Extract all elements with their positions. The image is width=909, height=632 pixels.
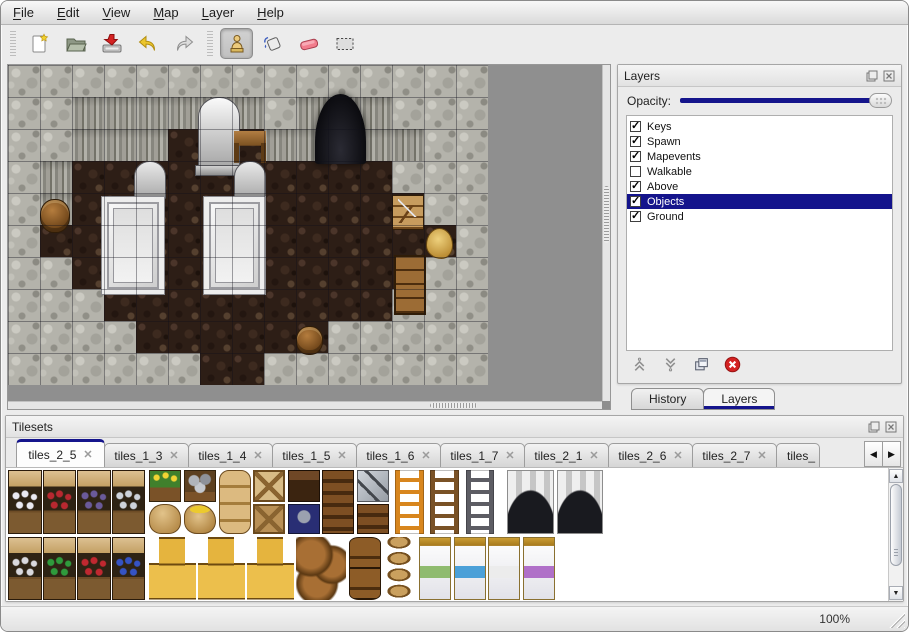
tileset-tile-cave-arch[interactable] <box>507 470 553 534</box>
map-tile[interactable] <box>456 97 488 129</box>
map-tile[interactable] <box>104 97 136 129</box>
map-tile[interactable] <box>456 257 488 289</box>
opacity-slider-handle[interactable] <box>869 93 892 108</box>
map-tile[interactable] <box>392 321 424 353</box>
map-tile[interactable] <box>360 257 392 289</box>
select-button[interactable] <box>328 28 361 59</box>
status-bar: 100% <box>1 606 908 631</box>
open-icon <box>64 32 88 56</box>
layer-checkbox[interactable]: ✓ <box>630 151 641 162</box>
layer-row-mapevents[interactable]: ✓Mapevents <box>627 149 892 164</box>
map-tile[interactable] <box>8 225 40 257</box>
tileset-tab-tiles_2_5[interactable]: tiles_2_5✕ <box>16 439 105 467</box>
menu-edit[interactable]: Edit <box>57 5 79 20</box>
tileset-tab-tiles_1_5[interactable]: tiles_1_5✕ <box>272 443 357 467</box>
layer-row-keys[interactable]: ✓Keys <box>627 119 892 134</box>
map-tile[interactable] <box>360 65 392 97</box>
map-tile[interactable] <box>392 65 424 97</box>
map-tile[interactable] <box>296 257 328 289</box>
menu-view[interactable]: View <box>102 5 130 20</box>
layers-panel-titlebar: Layers <box>618 65 901 87</box>
layer-name: Spawn <box>647 136 681 148</box>
layer-name: Walkable <box>647 166 692 178</box>
tileset-tile-shelf[interactable] <box>77 470 111 534</box>
tilesets-panel-titlebar: Tilesets <box>6 416 903 438</box>
tilesets-panel-title: Tilesets <box>12 420 863 434</box>
map-tile[interactable] <box>392 161 424 193</box>
tileset-tab-label: tiles_1_7 <box>450 449 498 463</box>
close-icon[interactable] <box>882 69 895 82</box>
map-tile[interactable] <box>424 65 456 97</box>
stamp-button[interactable] <box>220 28 253 59</box>
map-tile[interactable] <box>104 321 136 353</box>
close-icon[interactable] <box>884 420 897 433</box>
tileset-tile-cave-arch[interactable] <box>557 470 603 534</box>
redo-button[interactable] <box>167 28 200 59</box>
tileset-tile-shelf[interactable] <box>43 470 77 534</box>
tileset-tile-bed[interactable] <box>419 537 451 599</box>
map-tile[interactable] <box>264 65 296 97</box>
map-tile[interactable] <box>40 161 72 193</box>
map-object-barrel[interactable] <box>40 199 70 233</box>
tileset-tile-sack-open[interactable] <box>184 504 216 534</box>
map-tile[interactable] <box>168 225 200 257</box>
tab-close-icon[interactable]: ✕ <box>757 449 766 462</box>
map-tile[interactable] <box>296 353 328 385</box>
map-tile[interactable] <box>360 321 392 353</box>
scroll-down-icon[interactable]: ▼ <box>889 586 903 600</box>
tileset-tile-ladder[interactable] <box>430 470 459 534</box>
map-vertical-scrollbar-thumb[interactable] <box>604 186 609 243</box>
map-tile[interactable] <box>328 193 360 225</box>
map-tile[interactable] <box>328 65 360 97</box>
tileset-scrollbar-thumb[interactable] <box>890 484 902 566</box>
map-tile[interactable] <box>360 225 392 257</box>
tileset-tile-crate-pile[interactable] <box>198 537 244 599</box>
map-tile[interactable] <box>264 129 296 161</box>
map-tile[interactable] <box>40 65 72 97</box>
tileset-tab-label: tiles_1_5 <box>282 449 330 463</box>
tileset-tab-label: tiles_1_6 <box>366 449 414 463</box>
layer-checkbox[interactable]: ✓ <box>630 211 641 222</box>
tab-close-icon[interactable]: ✕ <box>83 448 92 461</box>
map-tile[interactable] <box>72 321 104 353</box>
map-object-skull[interactable] <box>426 228 453 258</box>
map-tile[interactable] <box>328 321 360 353</box>
map-tile[interactable] <box>232 353 264 385</box>
map-tile[interactable] <box>264 353 296 385</box>
map-object-gravestone[interactable] <box>234 161 266 199</box>
map-tile[interactable] <box>8 97 40 129</box>
map-tile[interactable] <box>424 257 456 289</box>
layer-checkbox[interactable]: ✓ <box>630 121 641 132</box>
tileset-tile-chest-dark[interactable] <box>288 470 320 502</box>
tileset-tile-crate-pile[interactable] <box>149 537 195 599</box>
map-tile[interactable] <box>392 129 424 161</box>
map-tile[interactable] <box>40 257 72 289</box>
move-layer-down-button[interactable] <box>661 358 679 376</box>
tileset-tab-tiles_1_4[interactable]: tiles_1_4✕ <box>188 443 273 467</box>
map-tile[interactable] <box>456 289 488 321</box>
delete-layer-button[interactable] <box>723 358 741 376</box>
opacity-slider-track <box>680 98 890 103</box>
map-tile[interactable] <box>104 161 136 193</box>
map-tile[interactable] <box>40 129 72 161</box>
layers-panel-title: Layers <box>624 69 861 83</box>
tileset-tile-barrel-upright[interactable] <box>349 537 381 599</box>
map-tile[interactable] <box>168 353 200 385</box>
map-vertical-scrollbar[interactable] <box>602 65 610 401</box>
tileset-tile-box-blue[interactable] <box>288 504 320 534</box>
tab-history[interactable]: History <box>631 388 704 410</box>
map-tile[interactable] <box>456 225 488 257</box>
map-tile[interactable] <box>136 353 168 385</box>
map-tile[interactable] <box>232 65 264 97</box>
map-tile[interactable] <box>360 289 392 321</box>
map-object-toolshelf[interactable] <box>392 195 424 230</box>
map-tile[interactable] <box>168 97 200 129</box>
new-map-button[interactable] <box>23 28 56 59</box>
map-tile[interactable] <box>424 321 456 353</box>
tileset-tile-box-z4[interactable] <box>357 470 389 502</box>
map-tile[interactable] <box>200 353 232 385</box>
layer-row-spawn[interactable]: ✓Spawn <box>627 134 892 149</box>
tab-close-icon[interactable]: ✕ <box>337 449 346 462</box>
map-tile[interactable] <box>136 129 168 161</box>
tab-close-icon[interactable]: ✕ <box>169 449 178 462</box>
layer-row-ground[interactable]: ✓Ground <box>627 209 892 224</box>
map-tile[interactable] <box>232 321 264 353</box>
right-dock: Layers Opacity: ✓Keys✓Spawn✓Mapevents <box>617 64 902 410</box>
map-tile[interactable] <box>424 161 456 193</box>
map-tile[interactable] <box>136 97 168 129</box>
map-tile[interactable] <box>72 225 104 257</box>
eraser-icon <box>297 32 321 56</box>
map-tile[interactable] <box>136 321 168 353</box>
tileset-tab-label: tiles_2_5 <box>28 448 76 462</box>
map-tile[interactable] <box>264 97 296 129</box>
tab-close-icon[interactable]: ✕ <box>253 449 262 462</box>
tab-close-icon[interactable]: ✕ <box>673 449 682 462</box>
map-tile[interactable] <box>72 97 104 129</box>
tileset-tile-ladder[interactable] <box>466 470 495 534</box>
tileset-tile-ladder[interactable] <box>395 470 424 534</box>
save-button[interactable] <box>95 28 128 59</box>
map-tile[interactable] <box>264 321 296 353</box>
tileset-tab-label: tiles_2_7 <box>702 449 750 463</box>
map-tile[interactable] <box>392 225 424 257</box>
layer-name: Keys <box>647 121 671 133</box>
map-tile[interactable] <box>328 257 360 289</box>
map-tile[interactable] <box>136 65 168 97</box>
tileset-tile-barrel-pile[interactable] <box>296 537 346 599</box>
tileset-tab-tiles[interactable]: tiles_ <box>776 443 820 467</box>
map-tile[interactable] <box>168 289 200 321</box>
tileset-tile-shelf[interactable] <box>8 470 42 534</box>
tileset-tile-shelf[interactable] <box>77 537 111 599</box>
map-tile[interactable] <box>424 129 456 161</box>
tileset-tab-tiles_2_1[interactable]: tiles_2_1✕ <box>524 443 609 467</box>
opacity-row: Opacity: <box>618 87 901 114</box>
map-tile[interactable] <box>40 289 72 321</box>
map-tile[interactable] <box>8 289 40 321</box>
layer-row-objects[interactable]: ✓Objects <box>627 194 892 209</box>
layer-checkbox[interactable]: ✓ <box>630 196 641 207</box>
tileset-tab-label: tiles_2_1 <box>534 449 582 463</box>
map-tile[interactable] <box>8 353 40 385</box>
tab-layers[interactable]: Layers <box>703 388 775 410</box>
save-icon <box>100 32 124 56</box>
tileset-tab-tiles_1_6[interactable]: tiles_1_6✕ <box>356 443 441 467</box>
map-object-altar[interactable] <box>101 196 165 295</box>
map-tile[interactable] <box>72 193 104 225</box>
map-tile[interactable] <box>72 65 104 97</box>
map-tile[interactable] <box>104 353 136 385</box>
map-tile[interactable] <box>360 353 392 385</box>
tileset-tab-label: tiles_1_4 <box>198 449 246 463</box>
layer-checkbox[interactable]: ✓ <box>630 181 641 192</box>
layers-panel: Layers Opacity: ✓Keys✓Spawn✓Mapevents <box>617 64 902 384</box>
undo-icon <box>136 32 160 56</box>
map-tile[interactable] <box>8 129 40 161</box>
resize-grip[interactable] <box>888 611 905 628</box>
tileset-tab-bar: tiles_2_5✕tiles_1_3✕tiles_1_4✕tiles_1_5✕… <box>6 438 903 467</box>
map-tile[interactable] <box>8 193 40 225</box>
tileset-tab-label: tiles_2_6 <box>618 449 666 463</box>
tileset-tab-tiles_1_3[interactable]: tiles_1_3✕ <box>104 443 189 467</box>
map-tile[interactable] <box>264 225 296 257</box>
map-tile[interactable] <box>168 65 200 97</box>
zoom-level: 100% <box>819 612 850 626</box>
layer-name: Objects <box>647 196 684 208</box>
tab-scroll-buttons: ◀▶ <box>865 441 901 467</box>
new-map-icon <box>28 32 52 56</box>
map-object-altar[interactable] <box>203 196 265 295</box>
menu-layer[interactable]: Layer <box>202 5 235 20</box>
map-object-table[interactable] <box>234 131 266 163</box>
map-tile[interactable] <box>424 97 456 129</box>
tileset-tile-bed[interactable] <box>488 537 520 599</box>
map-tile[interactable] <box>168 257 200 289</box>
tileset-tile-planter[interactable] <box>149 470 181 502</box>
map-tile[interactable] <box>72 129 104 161</box>
toolbar <box>1 25 908 62</box>
move-layer-down-icon <box>662 356 679 378</box>
opacity-label: Opacity: <box>627 94 671 108</box>
menu-file[interactable]: File <box>13 5 34 20</box>
tileset-vertical-scrollbar[interactable]: ▲ ▼ <box>888 468 903 601</box>
map-tile[interactable] <box>72 353 104 385</box>
map-tile[interactable] <box>264 161 296 193</box>
map-tile[interactable] <box>264 289 296 321</box>
map-tile[interactable] <box>8 321 40 353</box>
editor-window: FileEditViewMapLayerHelp Layers <box>0 0 909 632</box>
map-tile[interactable] <box>456 161 488 193</box>
menu-bar: FileEditViewMapLayerHelp <box>1 1 908 25</box>
tileset-tile-sack[interactable] <box>149 504 181 534</box>
map-tile[interactable] <box>296 161 328 193</box>
map-tile[interactable] <box>40 97 72 129</box>
tileset-tile-crate-banded[interactable] <box>322 470 354 534</box>
map-tile[interactable] <box>72 161 104 193</box>
tileset-tab-tiles_2_6[interactable]: tiles_2_6✕ <box>608 443 693 467</box>
map-tile[interactable] <box>104 65 136 97</box>
tileset-tab-label: tiles_1_3 <box>114 449 162 463</box>
map-tile[interactable] <box>328 161 360 193</box>
tileset-tab-tiles_2_7[interactable]: tiles_2_7✕ <box>692 443 777 467</box>
tileset-content: ▲ ▼ <box>6 467 903 601</box>
delete-layer-icon <box>724 356 741 378</box>
map-tile[interactable] <box>392 353 424 385</box>
duplicate-layer-button[interactable] <box>692 358 710 376</box>
map-object-gravestone[interactable] <box>134 161 166 199</box>
map-tile[interactable] <box>392 97 424 129</box>
map-tile[interactable] <box>168 129 200 161</box>
tab-close-icon[interactable]: ✕ <box>589 449 598 462</box>
map-tile[interactable] <box>72 257 104 289</box>
map-tile[interactable] <box>264 193 296 225</box>
map-tile[interactable] <box>264 257 296 289</box>
float-icon[interactable] <box>865 69 878 82</box>
map-tile[interactable] <box>328 289 360 321</box>
map-tile[interactable] <box>360 161 392 193</box>
layer-list: ✓Keys✓Spawn✓MapeventsWalkable✓Above✓Obje… <box>626 115 893 351</box>
tileset-tile-rockbox[interactable] <box>184 470 216 502</box>
map-tile[interactable] <box>456 353 488 385</box>
tileset-tile-shelf[interactable] <box>112 537 146 599</box>
open-button[interactable] <box>59 28 92 59</box>
tab-scroll-left-icon[interactable]: ◀ <box>864 441 883 467</box>
map-tile[interactable] <box>424 289 456 321</box>
map-horizontal-scrollbar-thumb[interactable] <box>430 403 478 408</box>
tab-scroll-right-icon[interactable]: ▶ <box>882 441 901 467</box>
eraser-button[interactable] <box>292 28 325 59</box>
tileset-tile-crate-pile[interactable] <box>247 537 293 599</box>
map-tile[interactable] <box>296 193 328 225</box>
map-tile[interactable] <box>360 97 392 129</box>
duplicate-layer-icon <box>693 356 710 378</box>
map-tile[interactable] <box>40 321 72 353</box>
map-tile[interactable] <box>424 193 456 225</box>
tab-close-icon[interactable]: ✕ <box>505 449 514 462</box>
scroll-up-icon[interactable]: ▲ <box>889 469 903 483</box>
map-tile[interactable] <box>296 289 328 321</box>
tileset-tile-bed[interactable] <box>523 537 555 599</box>
map-tile[interactable] <box>168 321 200 353</box>
menu-help[interactable]: Help <box>257 5 284 20</box>
map-tile[interactable] <box>296 65 328 97</box>
map-tile[interactable] <box>72 289 104 321</box>
toolbar-drag-handle[interactable] <box>207 31 213 57</box>
map-tile[interactable] <box>8 161 40 193</box>
tileset-tile-pot-stack[interactable] <box>383 537 415 599</box>
opacity-slider[interactable] <box>680 93 892 108</box>
layer-row-walkable[interactable]: Walkable <box>627 164 892 179</box>
map-tile[interactable] <box>360 193 392 225</box>
move-layer-up-icon <box>631 356 648 378</box>
layer-name: Mapevents <box>647 151 701 163</box>
select-icon <box>333 32 357 56</box>
layer-name: Above <box>647 181 678 193</box>
tilesets-panel: Tilesets tiles_2_5✕tiles_1_3✕tiles_1_4✕t… <box>5 415 904 602</box>
tileset-tile-crate-banded[interactable] <box>357 504 389 534</box>
fill-icon <box>261 32 285 56</box>
map-tile[interactable] <box>200 65 232 97</box>
layer-checkbox[interactable]: ✓ <box>630 136 641 147</box>
map-object-barrel[interactable] <box>296 326 323 355</box>
map-tile[interactable] <box>456 193 488 225</box>
tileset-tile-crate-x[interactable] <box>253 470 285 502</box>
redo-icon <box>172 32 196 56</box>
move-layer-up-button[interactable] <box>630 358 648 376</box>
map-object-cabinet[interactable] <box>394 255 426 314</box>
map-tile[interactable] <box>200 321 232 353</box>
stamp-icon <box>225 32 249 56</box>
tileset-tile-shelf[interactable] <box>43 537 77 599</box>
main-area: Layers Opacity: ✓Keys✓Spawn✓Mapevents <box>1 62 908 410</box>
tileset-tile-sack-stack[interactable] <box>219 470 251 534</box>
map-tile[interactable] <box>40 353 72 385</box>
map-tile[interactable] <box>8 257 40 289</box>
map-tile[interactable] <box>8 65 40 97</box>
tileset-tile-shelf[interactable] <box>8 537 42 599</box>
toolbar-drag-handle[interactable] <box>10 31 16 57</box>
float-icon[interactable] <box>867 420 880 433</box>
tileset-tile-shelf[interactable] <box>112 470 146 534</box>
layer-name: Ground <box>647 211 684 223</box>
tileset-tab-tiles_1_7[interactable]: tiles_1_7✕ <box>440 443 525 467</box>
map-tile[interactable] <box>168 193 200 225</box>
map-horizontal-scrollbar[interactable] <box>8 401 602 409</box>
map-tile[interactable] <box>328 225 360 257</box>
menu-map[interactable]: Map <box>153 5 178 20</box>
dock-tabs: HistoryLayers <box>617 386 902 410</box>
map-viewport <box>7 64 611 410</box>
layer-row-above[interactable]: ✓Above <box>627 179 892 194</box>
tileset-tab-label: tiles_ <box>787 449 815 463</box>
map-tile[interactable] <box>296 225 328 257</box>
undo-button[interactable] <box>131 28 164 59</box>
layer-checkbox[interactable] <box>630 166 641 177</box>
map-tile[interactable] <box>456 129 488 161</box>
map-tile[interactable] <box>456 65 488 97</box>
tileset-tile-crate-x[interactable] <box>253 504 285 534</box>
layer-actions <box>618 351 901 383</box>
fill-button[interactable] <box>256 28 289 59</box>
map-tile[interactable] <box>456 321 488 353</box>
map-tile[interactable] <box>328 353 360 385</box>
map-tile[interactable] <box>104 129 136 161</box>
tileset-tile-bed[interactable] <box>454 537 486 599</box>
map-canvas[interactable] <box>8 65 488 385</box>
map-tile[interactable] <box>424 353 456 385</box>
tab-close-icon[interactable]: ✕ <box>421 449 430 462</box>
